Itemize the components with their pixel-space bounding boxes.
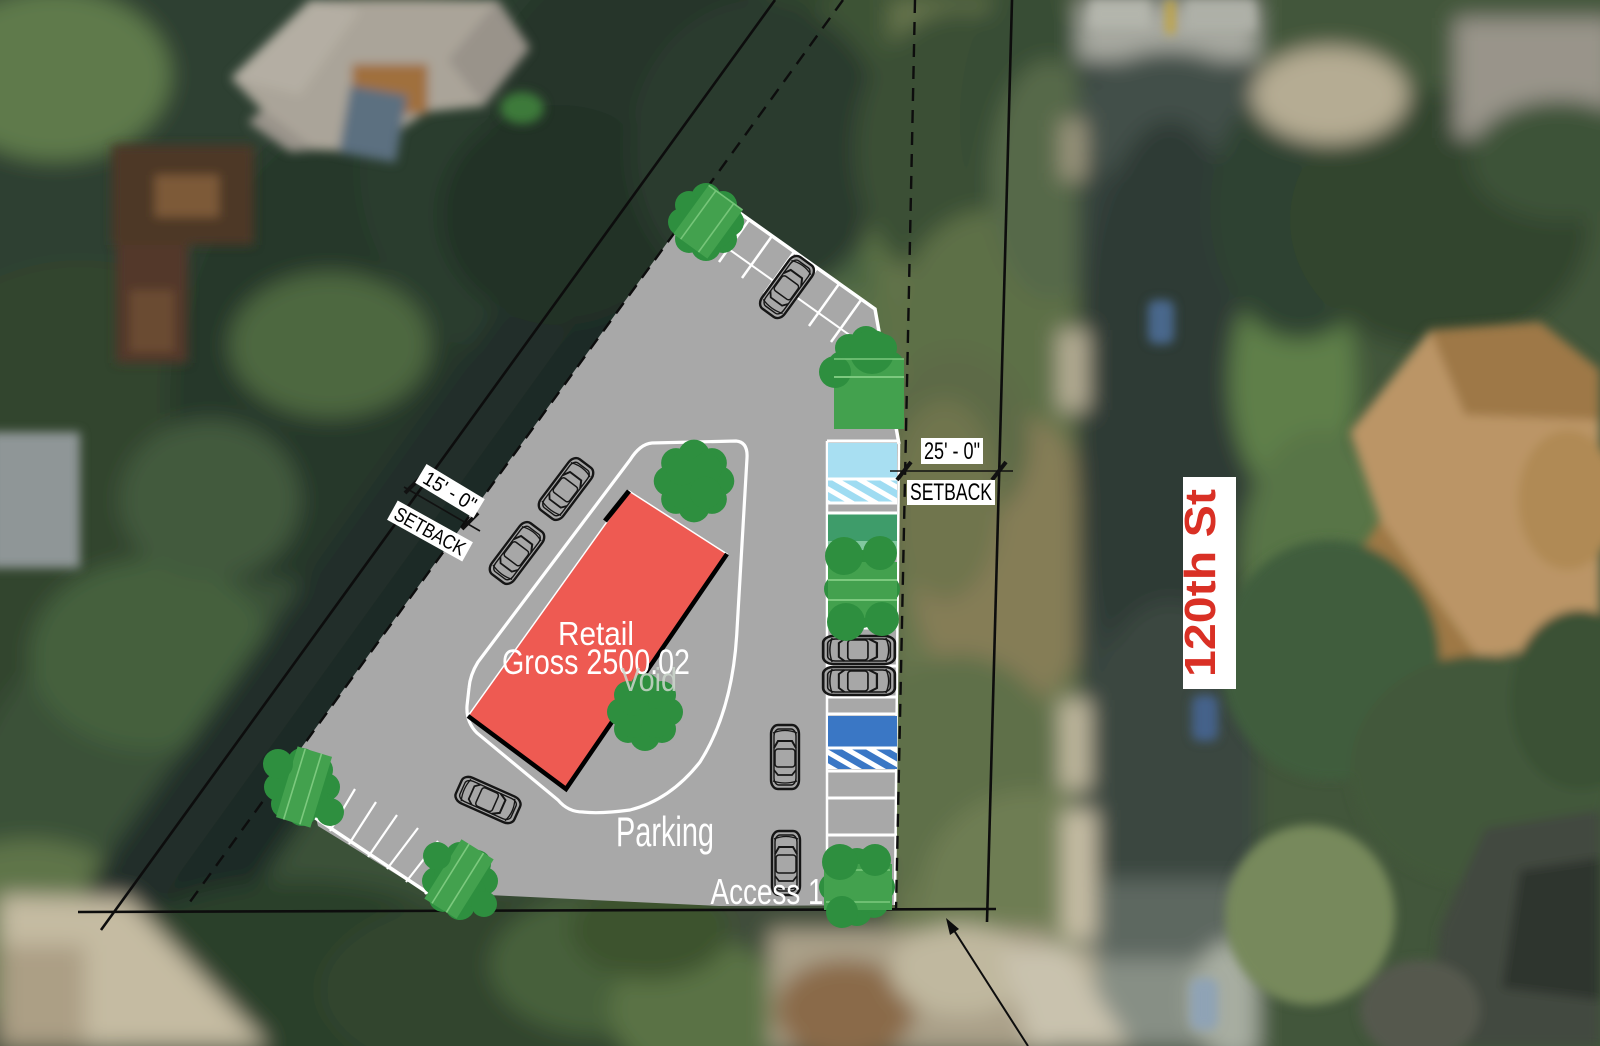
svg-text:SETBACK: SETBACK xyxy=(910,479,992,506)
svg-text:Access 1: Access 1 xyxy=(711,871,824,912)
svg-text:Parking: Parking xyxy=(616,808,714,855)
svg-text:25' - 0": 25' - 0" xyxy=(924,438,980,465)
svg-text:120th St: 120th St xyxy=(1176,489,1225,677)
svg-text:Void: Void xyxy=(621,661,677,698)
